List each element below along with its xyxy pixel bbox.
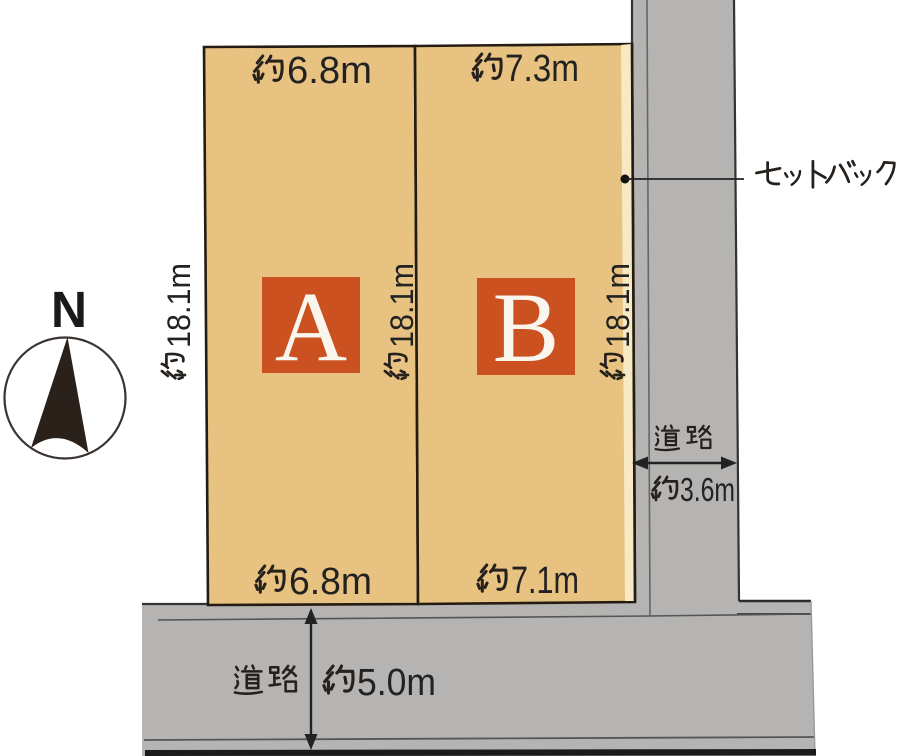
svg-text:18.1m: 18.1m <box>161 263 197 348</box>
svg-text:5.0m: 5.0m <box>357 662 436 704</box>
svg-text:7.3m: 7.3m <box>505 48 579 90</box>
svg-text:6.8m: 6.8m <box>289 561 372 603</box>
svg-text:6.8m: 6.8m <box>287 50 372 92</box>
svg-text:A: A <box>275 271 347 382</box>
svg-text:18.1m: 18.1m <box>384 263 420 348</box>
svg-text:N: N <box>51 281 87 338</box>
svg-text:18.1m: 18.1m <box>600 263 636 348</box>
svg-text:7.1m: 7.1m <box>511 560 579 602</box>
svg-text:B: B <box>493 272 560 383</box>
svg-text:3.6m: 3.6m <box>680 471 735 508</box>
